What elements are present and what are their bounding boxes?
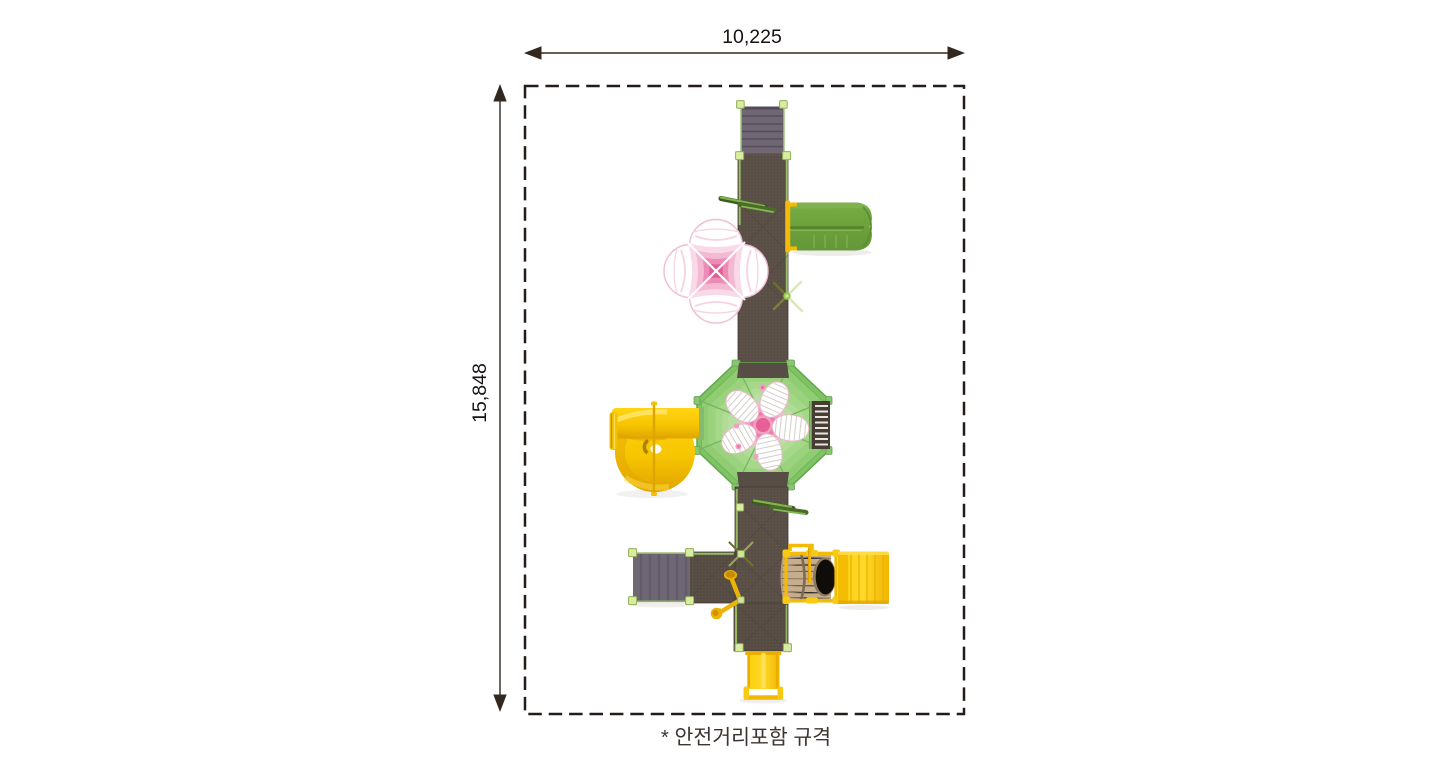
- svg-text:15,848: 15,848: [469, 363, 491, 423]
- svg-text:10,225: 10,225: [722, 26, 782, 48]
- svg-text:* 안전거리포함 규격: * 안전거리포함 규격: [661, 726, 831, 749]
